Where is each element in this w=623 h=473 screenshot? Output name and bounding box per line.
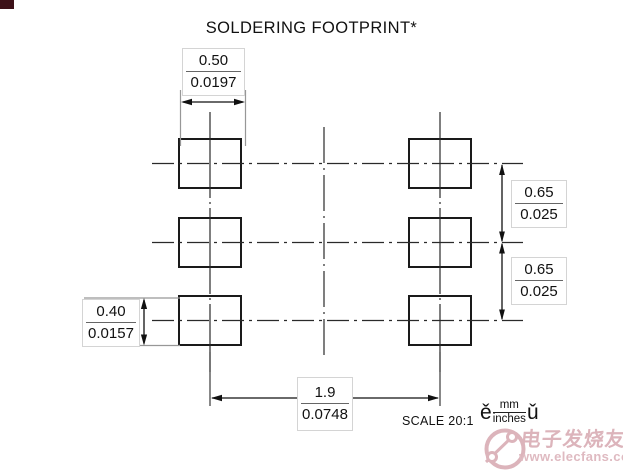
arrow-pitch-top-up <box>499 164 505 175</box>
arrow-pitch-top-down <box>499 232 505 243</box>
dim-pitch-top-inch: 0.025 <box>515 204 563 224</box>
dim-label-pad-height: 0.40 0.0157 <box>82 299 140 347</box>
dim-pitch-bottom-inch: 0.025 <box>515 281 563 301</box>
arrow-pad-height-down <box>141 335 147 346</box>
arrow-pad-width-left <box>181 99 192 105</box>
dim-pad-width-inch: 0.0197 <box>186 72 241 92</box>
arrow-pad-width-right <box>234 99 245 105</box>
dim-label-pitch-top: 0.65 0.025 <box>511 180 567 228</box>
arrow-pad-height-up <box>141 298 147 309</box>
dim-pitch-bottom-mm: 0.65 <box>515 260 563 281</box>
arrow-span-left <box>211 395 222 402</box>
dim-pad-height-inch: 0.0157 <box>86 323 136 343</box>
scale-label: SCALE 20:1 <box>402 414 474 428</box>
soldering-footprint-drawing: SOLDERING FOOTPRINT* <box>0 0 623 473</box>
units-close-bracket: ǔ <box>527 400 539 426</box>
units-mm-label: mm <box>493 399 526 413</box>
dim-label-pitch-bottom: 0.65 0.025 <box>511 257 567 305</box>
units-fraction: mm inches <box>493 399 526 426</box>
arrow-pitch-bottom-up <box>499 243 505 254</box>
dim-label-pad-width: 0.50 0.0197 <box>182 48 245 96</box>
dim-label-span: 1.9 0.0748 <box>297 377 353 431</box>
dim-pad-width-mm: 0.50 <box>186 51 241 72</box>
dim-span-inch: 0.0748 <box>301 404 349 424</box>
arrow-pitch-bottom-down <box>499 310 505 321</box>
dim-span-mm: 1.9 <box>301 383 349 404</box>
arrow-span-right <box>428 395 439 402</box>
units-inches-label: inches <box>493 413 526 426</box>
units-open-bracket: ě <box>480 400 492 426</box>
dim-pad-height-mm: 0.40 <box>86 302 136 323</box>
dim-pitch-top-mm: 0.65 <box>515 183 563 204</box>
units-note: ě mm inches ǔ <box>480 399 539 426</box>
